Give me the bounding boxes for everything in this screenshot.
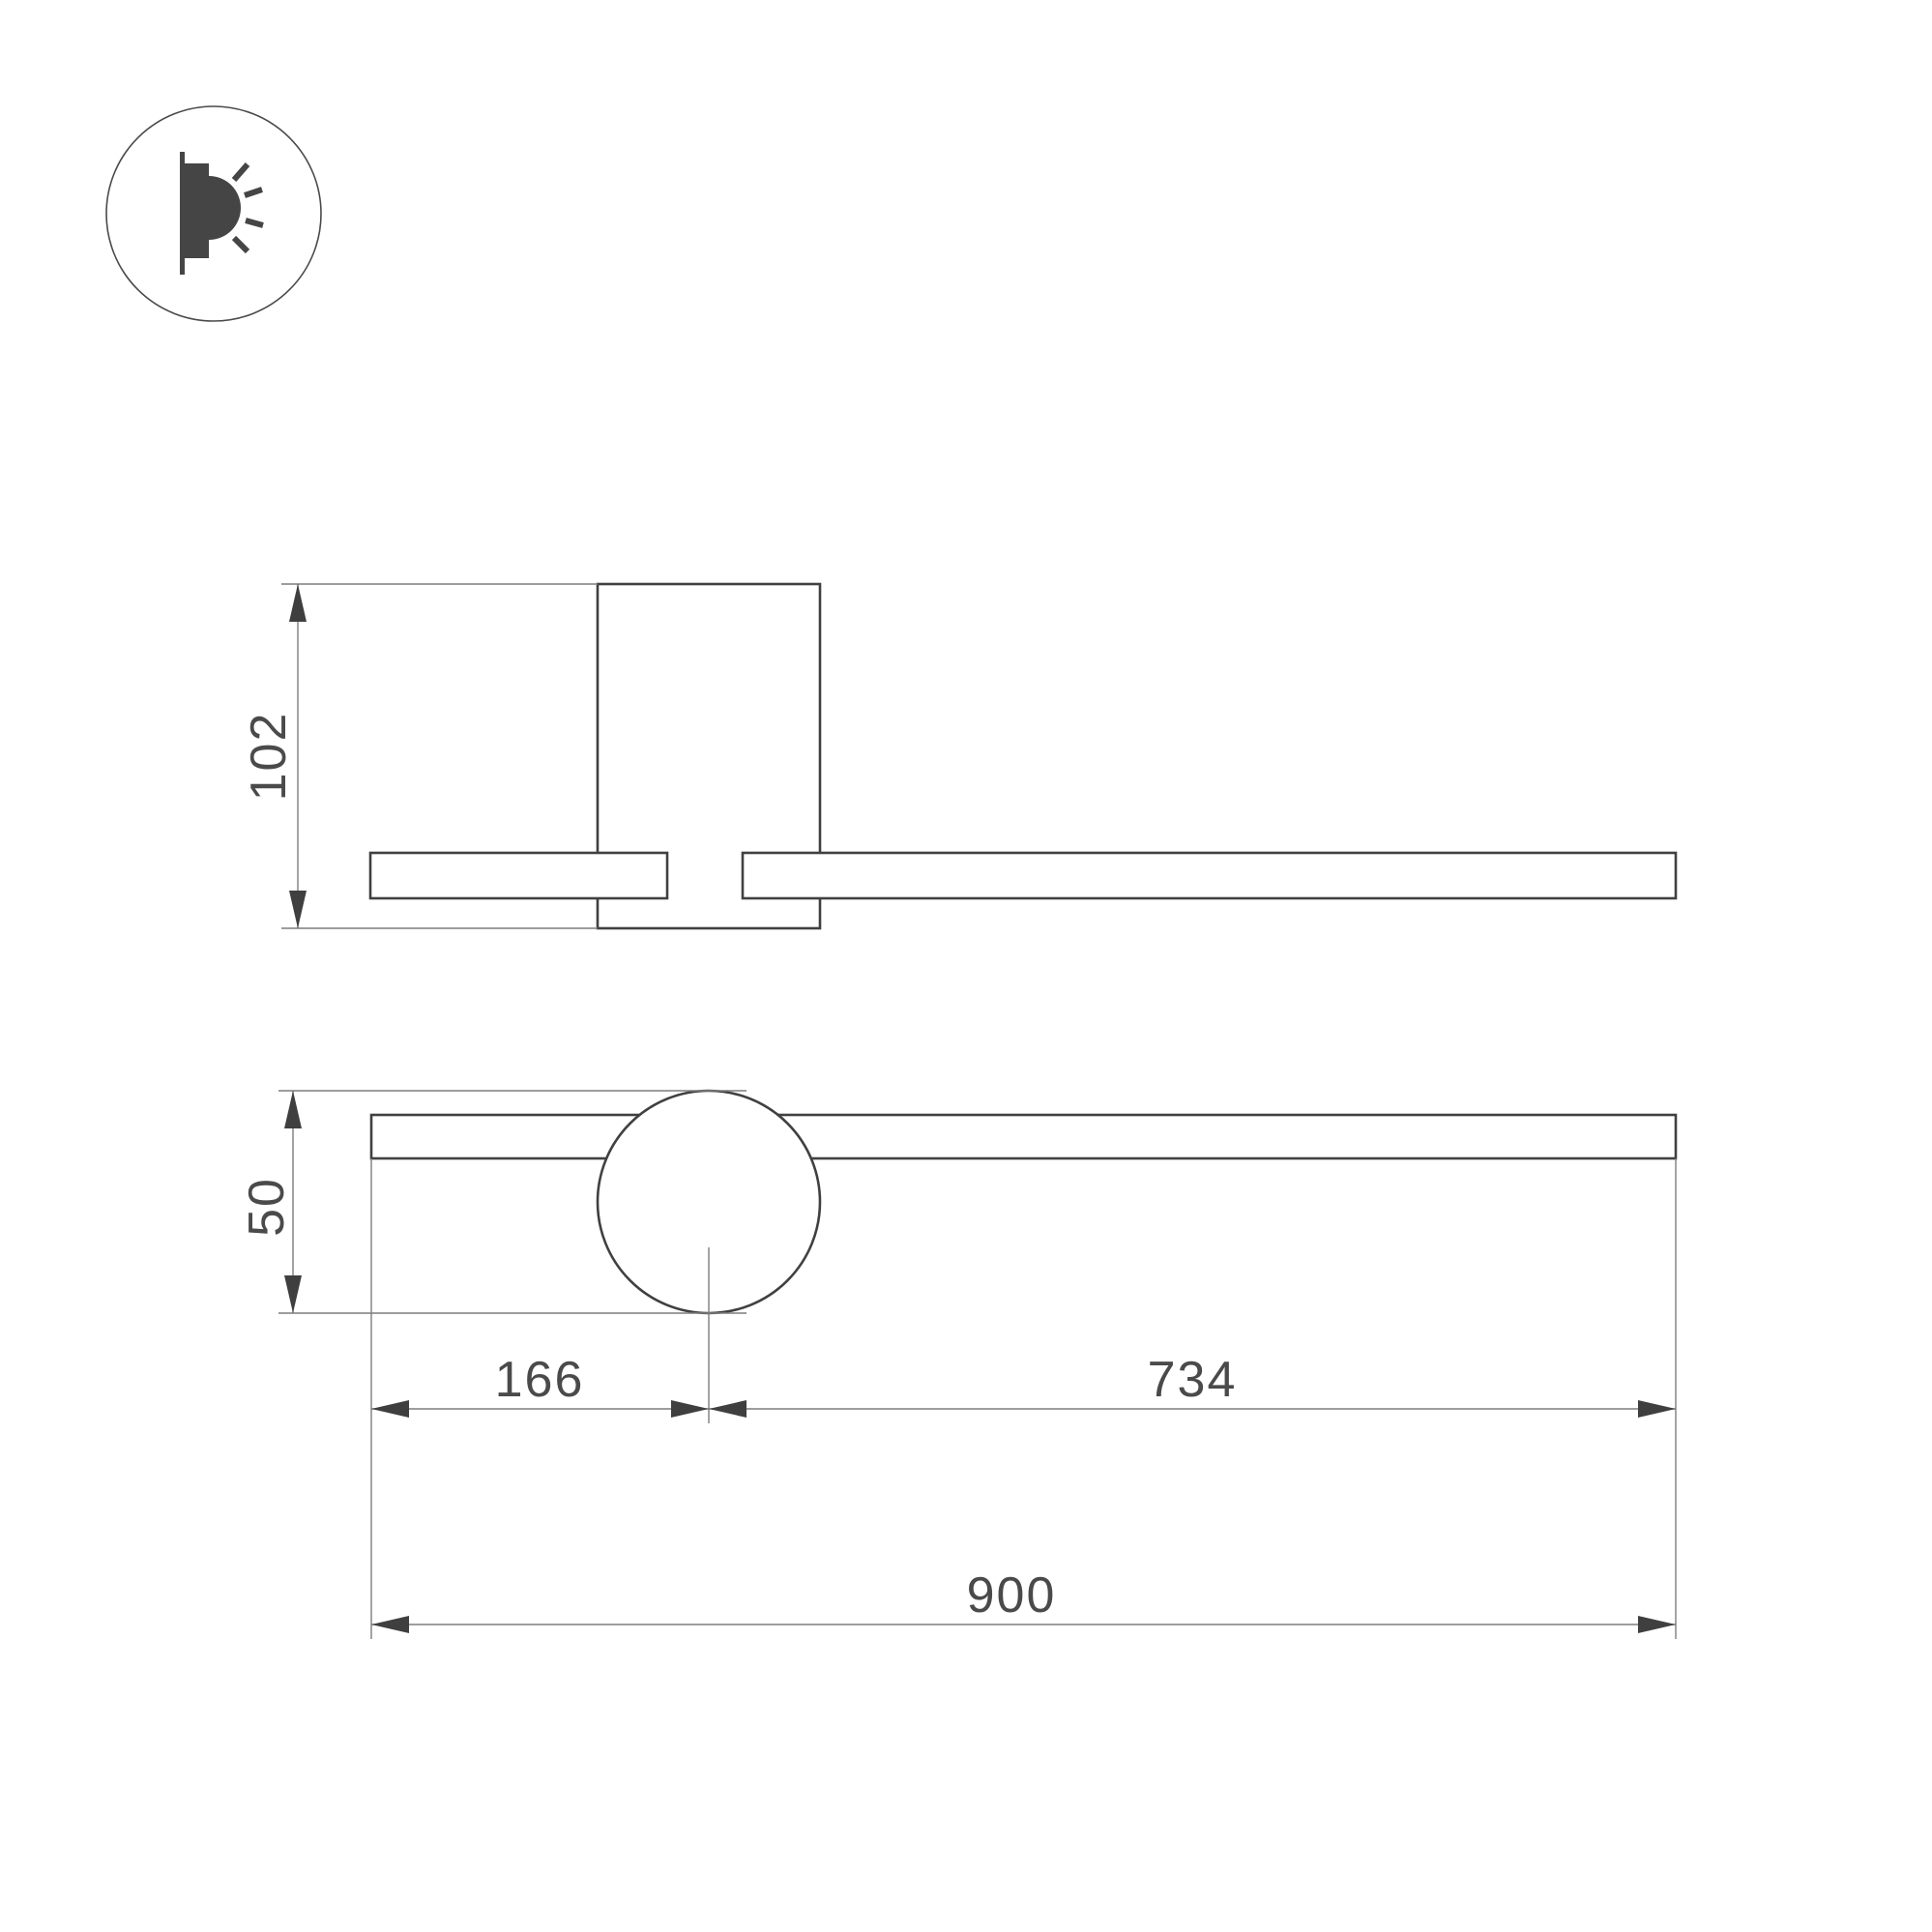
side-view-left-arm [370,853,667,898]
side-view-right-arm [743,853,1676,898]
dimension-label-right-span: 734 [1148,1352,1238,1408]
dimension-166-734: 166 734 [371,1352,1676,1418]
arrowhead-up [284,1091,302,1128]
arrowhead-right-end [1638,1400,1676,1418]
dimension-label-ball-diameter: 50 [239,1177,295,1237]
icon-lamp-body [185,163,209,258]
wall-light-icon [106,106,321,321]
icon-wall-line [180,152,185,275]
arrowhead-right-end [1638,1616,1676,1633]
lamp-dimension-drawing: 102 50 166 734 900 [0,0,1932,1932]
arrowhead-center-rightward [671,1400,709,1418]
dimension-900: 900 [371,1567,1676,1633]
front-view-bar [371,1115,1676,1158]
dimension-label-total-length: 900 [967,1567,1057,1624]
arrowhead-down [289,891,307,928]
arrowhead-up [289,584,307,622]
dimension-label-left-offset: 166 [495,1352,585,1408]
arrowhead-left-end [371,1400,409,1418]
arrowhead-center-leftward [709,1400,746,1418]
side-view [370,584,1676,928]
dimension-label-side-height: 102 [241,712,297,802]
arrowhead-left-end [371,1616,409,1633]
arrowhead-down [284,1275,302,1313]
